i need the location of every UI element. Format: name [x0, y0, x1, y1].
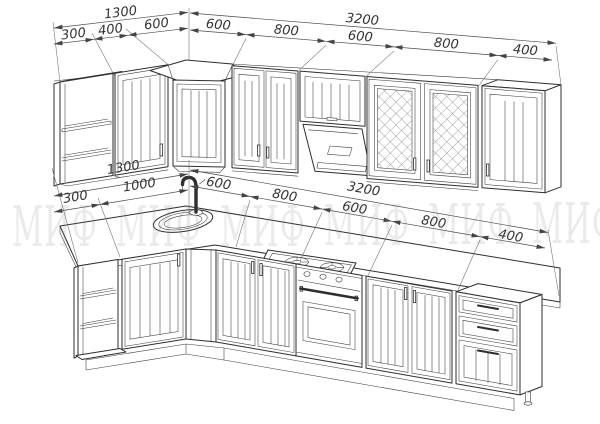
base-open-shelf-unit — [74, 260, 126, 360]
watermark-text: МИФ — [116, 195, 202, 260]
door-handle — [487, 164, 489, 176]
dim-label: 800 — [433, 36, 459, 53]
door-handle — [405, 288, 407, 300]
door-handle — [258, 145, 260, 156]
kitchen-drawing-page: 1300 300 400 600 3200 600 800 600 800 40… — [0, 0, 600, 424]
oven-knob — [320, 274, 326, 279]
dim-label: 600 — [143, 16, 169, 34]
watermark-text: МИФ — [12, 195, 98, 260]
door-handle — [160, 144, 163, 156]
leg-foot — [524, 402, 532, 405]
watermark-text: МИФ — [220, 195, 306, 260]
upper-lattice-cabinet — [367, 77, 478, 191]
lattice-glass — [378, 89, 413, 171]
base-double-door-cabinet-right — [366, 276, 452, 383]
oven-knob — [336, 277, 342, 282]
upper-double-door-cabinet — [232, 66, 298, 177]
upper-hood-cabinet — [300, 71, 365, 126]
dim-label: 3200 — [345, 11, 379, 29]
door-handle — [260, 264, 262, 276]
dim-label: 800 — [273, 22, 299, 39]
oven — [296, 264, 362, 368]
door-handle — [414, 158, 416, 170]
door-handle — [267, 147, 269, 158]
dim-label: 600 — [347, 28, 373, 45]
dim-label: 400 — [97, 21, 123, 39]
latch — [327, 118, 337, 121]
base-double-door-cabinet-left — [216, 250, 296, 356]
door-handle — [413, 291, 415, 303]
door-handle — [427, 160, 429, 172]
watermark-text: МИФ — [324, 194, 410, 259]
lattice-glass — [433, 93, 468, 175]
kitchen-axonometric-drawing: 1300 300 400 600 3200 600 800 600 800 40… — [0, 0, 600, 424]
door-handle — [252, 262, 254, 274]
corner-base-cabinet — [122, 249, 216, 349]
oven-knob — [304, 272, 310, 277]
watermark-text: МИФ — [532, 192, 600, 257]
watermark-text: МИФ — [428, 193, 514, 258]
dim-label: 600 — [205, 17, 231, 34]
dim-label: 300 — [60, 26, 86, 44]
upper-end-cabinet — [482, 80, 561, 193]
adjustable-leg — [526, 392, 531, 402]
dim-label: 400 — [512, 42, 538, 59]
corner-post — [186, 249, 216, 342]
